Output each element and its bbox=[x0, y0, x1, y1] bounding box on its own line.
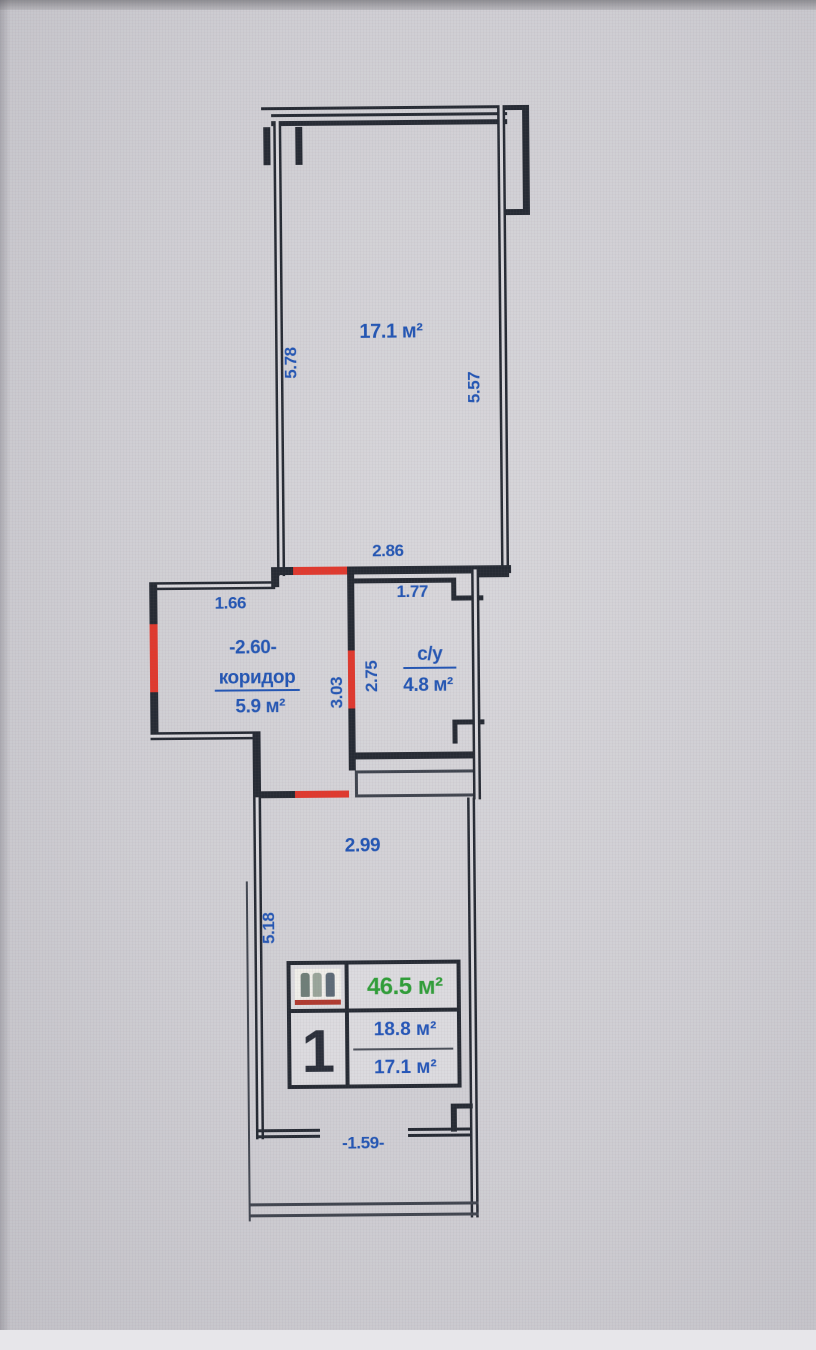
photo-bottom-edge bbox=[0, 1330, 816, 1350]
balcony-line bbox=[249, 1212, 479, 1217]
unit-type-icon bbox=[295, 969, 341, 1005]
floorplan-drawing: 17.1 м² 5.78 5.57 2.86 1.66 1.77 -2.60- … bbox=[0, 0, 816, 1350]
wall-segment bbox=[295, 127, 302, 165]
dimension-label: -1.59- bbox=[342, 1133, 384, 1153]
upper-room-area-label: 17.1 м² bbox=[359, 320, 422, 344]
wall-segment bbox=[252, 731, 261, 797]
dimension-label: 1.77 bbox=[396, 582, 428, 602]
dimension-label: -2.60- bbox=[229, 637, 276, 659]
legend-table: 1 46.5 м² 18.8 м² 17.1 м² bbox=[286, 960, 461, 1090]
door-opening bbox=[295, 791, 349, 798]
entrance-door-opening bbox=[150, 624, 159, 692]
balcony-line bbox=[249, 1201, 479, 1206]
total-area-value: 46.5 м² bbox=[349, 966, 461, 1009]
wall-segment bbox=[522, 105, 530, 215]
dimension-label: 2.75 bbox=[362, 660, 382, 692]
duct-outline bbox=[355, 793, 477, 797]
area-value-2: 17.1 м² bbox=[349, 1050, 461, 1087]
wall-segment bbox=[452, 720, 457, 744]
area-value-1: 18.8 м² bbox=[349, 1012, 461, 1049]
bathroom-name-text: с/у bbox=[403, 644, 456, 669]
dimension-label: 3.03 bbox=[327, 677, 347, 709]
wall-segment bbox=[150, 731, 258, 740]
wall-segment bbox=[149, 582, 157, 624]
floorplan-photo: 17.1 м² 5.78 5.57 2.86 1.66 1.77 -2.60- … bbox=[0, 0, 816, 1350]
window-line bbox=[256, 1129, 320, 1133]
wall-segment bbox=[471, 569, 481, 799]
window-line bbox=[408, 1127, 472, 1131]
wall-segment bbox=[149, 581, 275, 590]
wall-segment bbox=[253, 797, 264, 1139]
door-opening bbox=[293, 567, 347, 575]
door-opening bbox=[348, 650, 356, 708]
balcony-line bbox=[246, 881, 251, 1221]
window-line bbox=[408, 1133, 472, 1137]
window-line bbox=[271, 119, 507, 126]
window-line bbox=[256, 1135, 320, 1139]
wall-segment bbox=[277, 567, 293, 575]
window-line bbox=[261, 105, 507, 110]
pictogram-bar bbox=[326, 973, 335, 997]
wall-segment bbox=[349, 751, 481, 759]
dimension-label: 1.66 bbox=[215, 593, 247, 613]
duct-outline bbox=[355, 770, 358, 797]
pictogram-bar bbox=[313, 973, 322, 997]
dimension-label: 2.86 bbox=[372, 541, 404, 561]
duct-outline bbox=[355, 769, 477, 773]
wall-segment bbox=[451, 1103, 473, 1108]
corridor-name-text: коридор bbox=[215, 667, 300, 692]
wall-segment bbox=[271, 567, 279, 587]
unit-number: 1 bbox=[291, 1013, 346, 1089]
bathroom-area-label: 4.8 м² bbox=[403, 675, 453, 697]
corridor-area-label: 5.9 м² bbox=[235, 696, 285, 718]
dimension-label: 5.78 bbox=[281, 347, 301, 379]
bathroom-name-label: с/у bbox=[403, 644, 456, 666]
corridor-name-label: коридор bbox=[215, 667, 300, 690]
wall-segment bbox=[504, 209, 528, 215]
wall-segment bbox=[497, 105, 509, 577]
dimension-label: 5.57 bbox=[464, 372, 484, 404]
wall-segment bbox=[263, 127, 270, 165]
dimension-label: 2.99 bbox=[345, 835, 381, 857]
dimension-label: 5.18 bbox=[259, 912, 279, 944]
window-line bbox=[271, 112, 507, 117]
wall-segment bbox=[467, 797, 479, 1217]
pictogram-bar bbox=[300, 973, 309, 997]
